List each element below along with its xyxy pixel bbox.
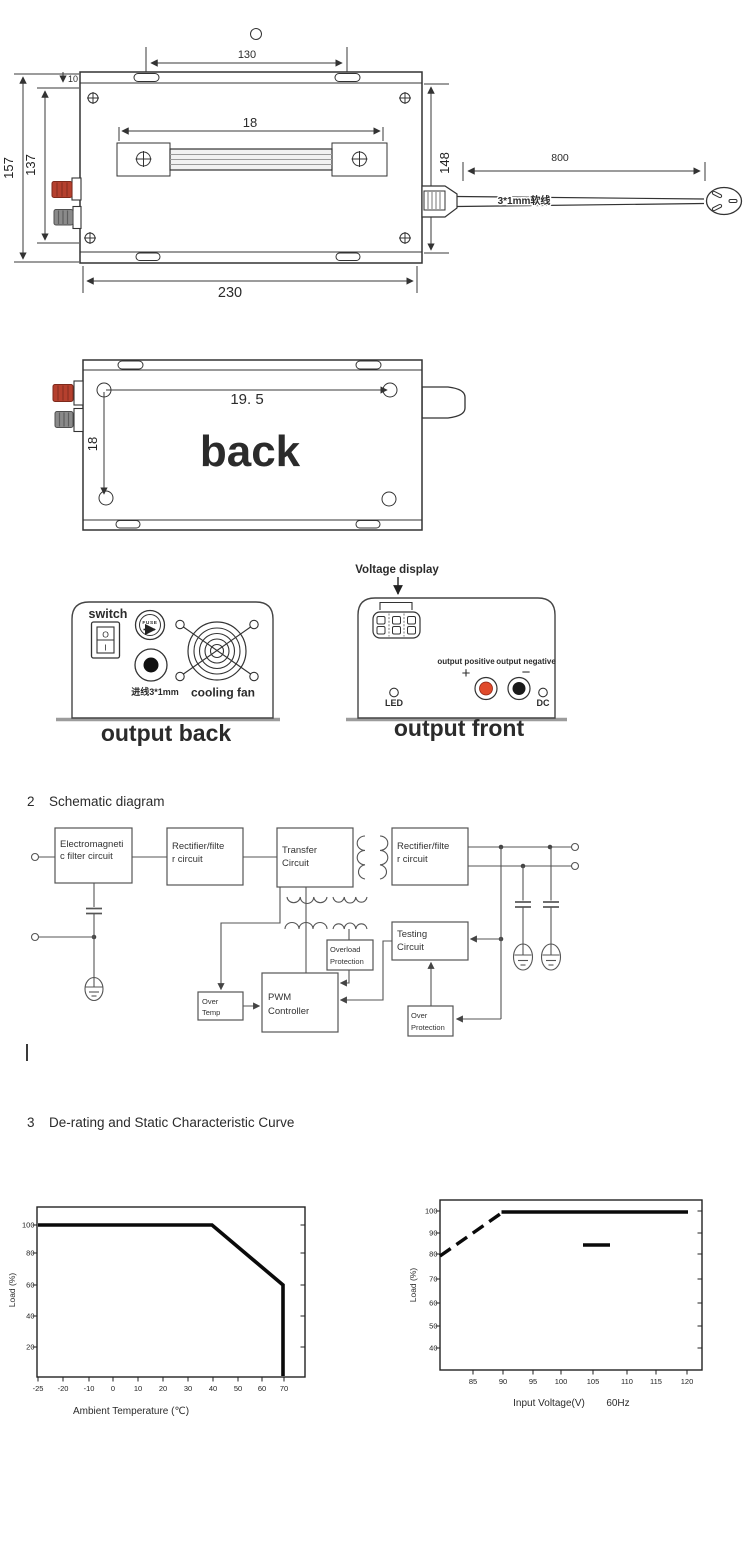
manual-page: 130 18 <box>0 0 750 1556</box>
block-overload-protection: Overload Protection <box>327 940 373 970</box>
cable-stub <box>422 387 465 418</box>
block-label: r circuit <box>397 854 428 865</box>
transformer-icon <box>357 836 388 879</box>
output-terminal-negative <box>54 207 81 229</box>
y-tick-label: 20 <box>26 1343 34 1352</box>
voltage-display-label: Voltage display <box>355 564 439 576</box>
output-back-caption: output back <box>101 720 232 746</box>
x-tick-label: 50 <box>234 1384 242 1393</box>
output-terminal <box>572 844 579 851</box>
led-label: LED <box>385 698 404 708</box>
dim-18-back-label: 18 <box>85 437 100 451</box>
dim-137-label: 137 <box>23 154 38 176</box>
x-tick-label: 85 <box>469 1377 477 1386</box>
section-heading-derating: 3De-rating and Static Characteristic Cur… <box>27 1115 294 1130</box>
dimension-157: 157 <box>1 74 79 262</box>
block-emi-filter: Electromagneti c filter circuit <box>55 828 132 883</box>
block-label: Rectifier/filte <box>172 841 224 852</box>
x-tick-label: 115 <box>650 1377 662 1386</box>
x-axis-label: Ambient Temperature (℃) <box>73 1406 189 1417</box>
y-tick-label: 90 <box>429 1229 437 1238</box>
capacitor-icon <box>86 883 102 937</box>
block-rectifier-filter-1: Rectifier/filte r circuit <box>167 828 243 885</box>
block-label: Temp <box>202 1008 220 1017</box>
output-front-caption: output front <box>394 715 525 741</box>
block-label: Testing <box>397 929 427 940</box>
y-tick-label: 40 <box>26 1312 34 1321</box>
back-view-title: back <box>200 427 301 476</box>
y-tick-label: 60 <box>26 1281 34 1290</box>
block-label: Electromagneti <box>60 839 123 850</box>
x-tick-label: -10 <box>84 1384 95 1393</box>
x-tick-label: 40 <box>209 1384 217 1393</box>
cooling-fan-label: cooling fan <box>191 686 255 700</box>
block-label: Protection <box>411 1023 445 1032</box>
x-tick-label: 70 <box>280 1384 288 1393</box>
block-over-protection: Over Protection <box>408 1006 453 1036</box>
dim-800-label: 800 <box>551 152 569 164</box>
power-cable-assembly: 800 3*1mm软线 <box>422 152 742 217</box>
derating-curve <box>38 1225 283 1376</box>
x-axis-label: Input Voltage(V) <box>513 1398 585 1409</box>
switch-label: switch <box>89 607 128 621</box>
derating-charts: 100 80 60 40 20 -25 -20 -10 0 10 20 30 4… <box>0 1195 750 1440</box>
block-rectifier-filter-2: Rectifier/filte r circuit <box>392 828 468 885</box>
x-tick-label: -25 <box>33 1384 44 1393</box>
output-back-panel: switch O I FUSE <box>56 602 280 746</box>
fuse-label: FUSE <box>142 620 157 626</box>
block-label: Over <box>411 1011 428 1020</box>
x-tick-label: 110 <box>621 1377 633 1386</box>
block-label: Rectifier/filte <box>397 841 449 852</box>
dim-230-label: 230 <box>218 285 242 301</box>
dimension-148: 148 <box>424 84 452 253</box>
x-tick-label: -20 <box>58 1384 69 1393</box>
block-label: Transfer <box>282 845 317 856</box>
positive-terminal-icon <box>475 678 497 700</box>
y-tick-label: 40 <box>429 1344 437 1353</box>
dim-148-label: 148 <box>437 152 452 174</box>
panel-views-drawing: switch O I FUSE <box>0 548 750 783</box>
block-label: Circuit <box>282 858 309 869</box>
led-indicator-icon <box>390 688 399 697</box>
ground-symbol-icon <box>85 937 103 1001</box>
ground-symbol-icon <box>542 944 561 970</box>
dim-19-5-label: 19. 5 <box>230 391 263 408</box>
section-heading-schematic: 2Schematic diagram <box>27 794 165 809</box>
cable-spec-label: 3*1mm软线 <box>498 194 551 207</box>
input-terminal <box>32 934 39 941</box>
output-terminal-positive <box>52 178 81 200</box>
dim-157-label: 157 <box>1 157 16 179</box>
x-tick-label: 120 <box>681 1377 694 1386</box>
top-view-drawing: 130 18 <box>0 0 750 335</box>
y-tick-label: 80 <box>429 1250 437 1259</box>
block-label: Controller <box>268 1006 309 1017</box>
y-axis-ticks <box>33 1225 306 1347</box>
block-label: Over <box>202 997 219 1006</box>
block-over-temp: Over Temp <box>198 992 243 1020</box>
section-title: Schematic diagram <box>49 794 165 809</box>
x-tick-label: 105 <box>587 1377 600 1386</box>
text-cursor-artifact <box>26 1044 28 1061</box>
block-pwm-controller: PWM Controller <box>262 973 338 1032</box>
capacitor-icon <box>515 866 531 944</box>
y-tick-label: 100 <box>22 1221 35 1230</box>
output-terminal-positive <box>53 381 83 405</box>
x-tick-label: 10 <box>134 1384 142 1393</box>
y-tick-label: 60 <box>429 1299 437 1308</box>
block-testing-circuit: Testing Circuit <box>392 922 468 960</box>
x-tick-label: 100 <box>555 1377 568 1386</box>
block-label: c filter circuit <box>60 851 113 862</box>
dc-label: DC <box>537 698 550 708</box>
negative-terminal-icon <box>508 678 530 700</box>
ac-inlet-hole <box>135 649 167 681</box>
y-tick-label: 80 <box>26 1249 34 1258</box>
input-terminal <box>32 854 39 861</box>
y-axis-label: Load (%) <box>7 1273 17 1308</box>
x-tick-label: 60 <box>258 1384 266 1393</box>
block-transfer-circuit: Transfer Circuit <box>277 828 353 887</box>
block-label: Protection <box>330 957 364 966</box>
output-terminal <box>572 863 579 870</box>
section-number: 2 <box>27 794 49 809</box>
output-terminal-negative <box>55 409 83 432</box>
section-title: De-rating and Static Characteristic Curv… <box>49 1115 294 1130</box>
back-view-drawing: 19. 5 18 back <box>0 340 750 548</box>
schematic-diagram: Electromagneti c filter circuit Rectifie… <box>0 815 750 1085</box>
power-switch-icon: O I <box>92 622 120 658</box>
block-label: Circuit <box>397 942 424 953</box>
block-label: Overload <box>330 945 360 954</box>
x-axis-label-note: 60Hz <box>606 1398 629 1409</box>
x-tick-label: 20 <box>159 1384 167 1393</box>
x-tick-label: 90 <box>499 1377 507 1386</box>
voltage-curve-dashed <box>440 1212 503 1256</box>
plus-sign: + <box>462 665 471 682</box>
inlet-label: 进线3*1mm <box>131 686 179 697</box>
x-tick-label: 30 <box>184 1384 192 1393</box>
section-number: 3 <box>27 1115 49 1130</box>
hole-mark <box>251 29 262 40</box>
dimension-230: 230 <box>83 266 417 301</box>
chart-load-vs-voltage: 100 90 80 70 60 50 40 85 90 95 100 105 1… <box>408 1200 702 1409</box>
y-tick-label: 50 <box>429 1322 437 1331</box>
dim-10-label: 10 <box>68 74 78 84</box>
block-label: r circuit <box>172 854 203 865</box>
chart-load-vs-temperature: 100 80 60 40 20 -25 -20 -10 0 10 20 30 4… <box>7 1207 305 1417</box>
dimension-800: 800 <box>463 152 705 181</box>
x-tick-label: 0 <box>111 1384 115 1393</box>
dim-18-label: 18 <box>243 115 257 130</box>
switch-off-mark: O <box>102 630 109 640</box>
fuse-icon: FUSE <box>136 611 165 640</box>
capacitor-icon <box>543 847 559 944</box>
x-tick-label: 95 <box>529 1377 537 1386</box>
dim-130-label: 130 <box>238 49 256 61</box>
output-front-panel: Voltage display output positive output n… <box>346 564 567 741</box>
y-tick-label: 70 <box>429 1275 437 1284</box>
y-tick-label: 100 <box>425 1207 438 1216</box>
plug-icon <box>707 188 742 215</box>
dc-jack-icon <box>539 688 548 697</box>
ground-symbol-icon <box>514 944 533 970</box>
inductor-coils-icon <box>285 897 367 929</box>
y-axis-label: Load (%) <box>408 1268 418 1303</box>
block-label: PWM <box>268 992 291 1003</box>
switch-on-mark: I <box>104 643 106 653</box>
